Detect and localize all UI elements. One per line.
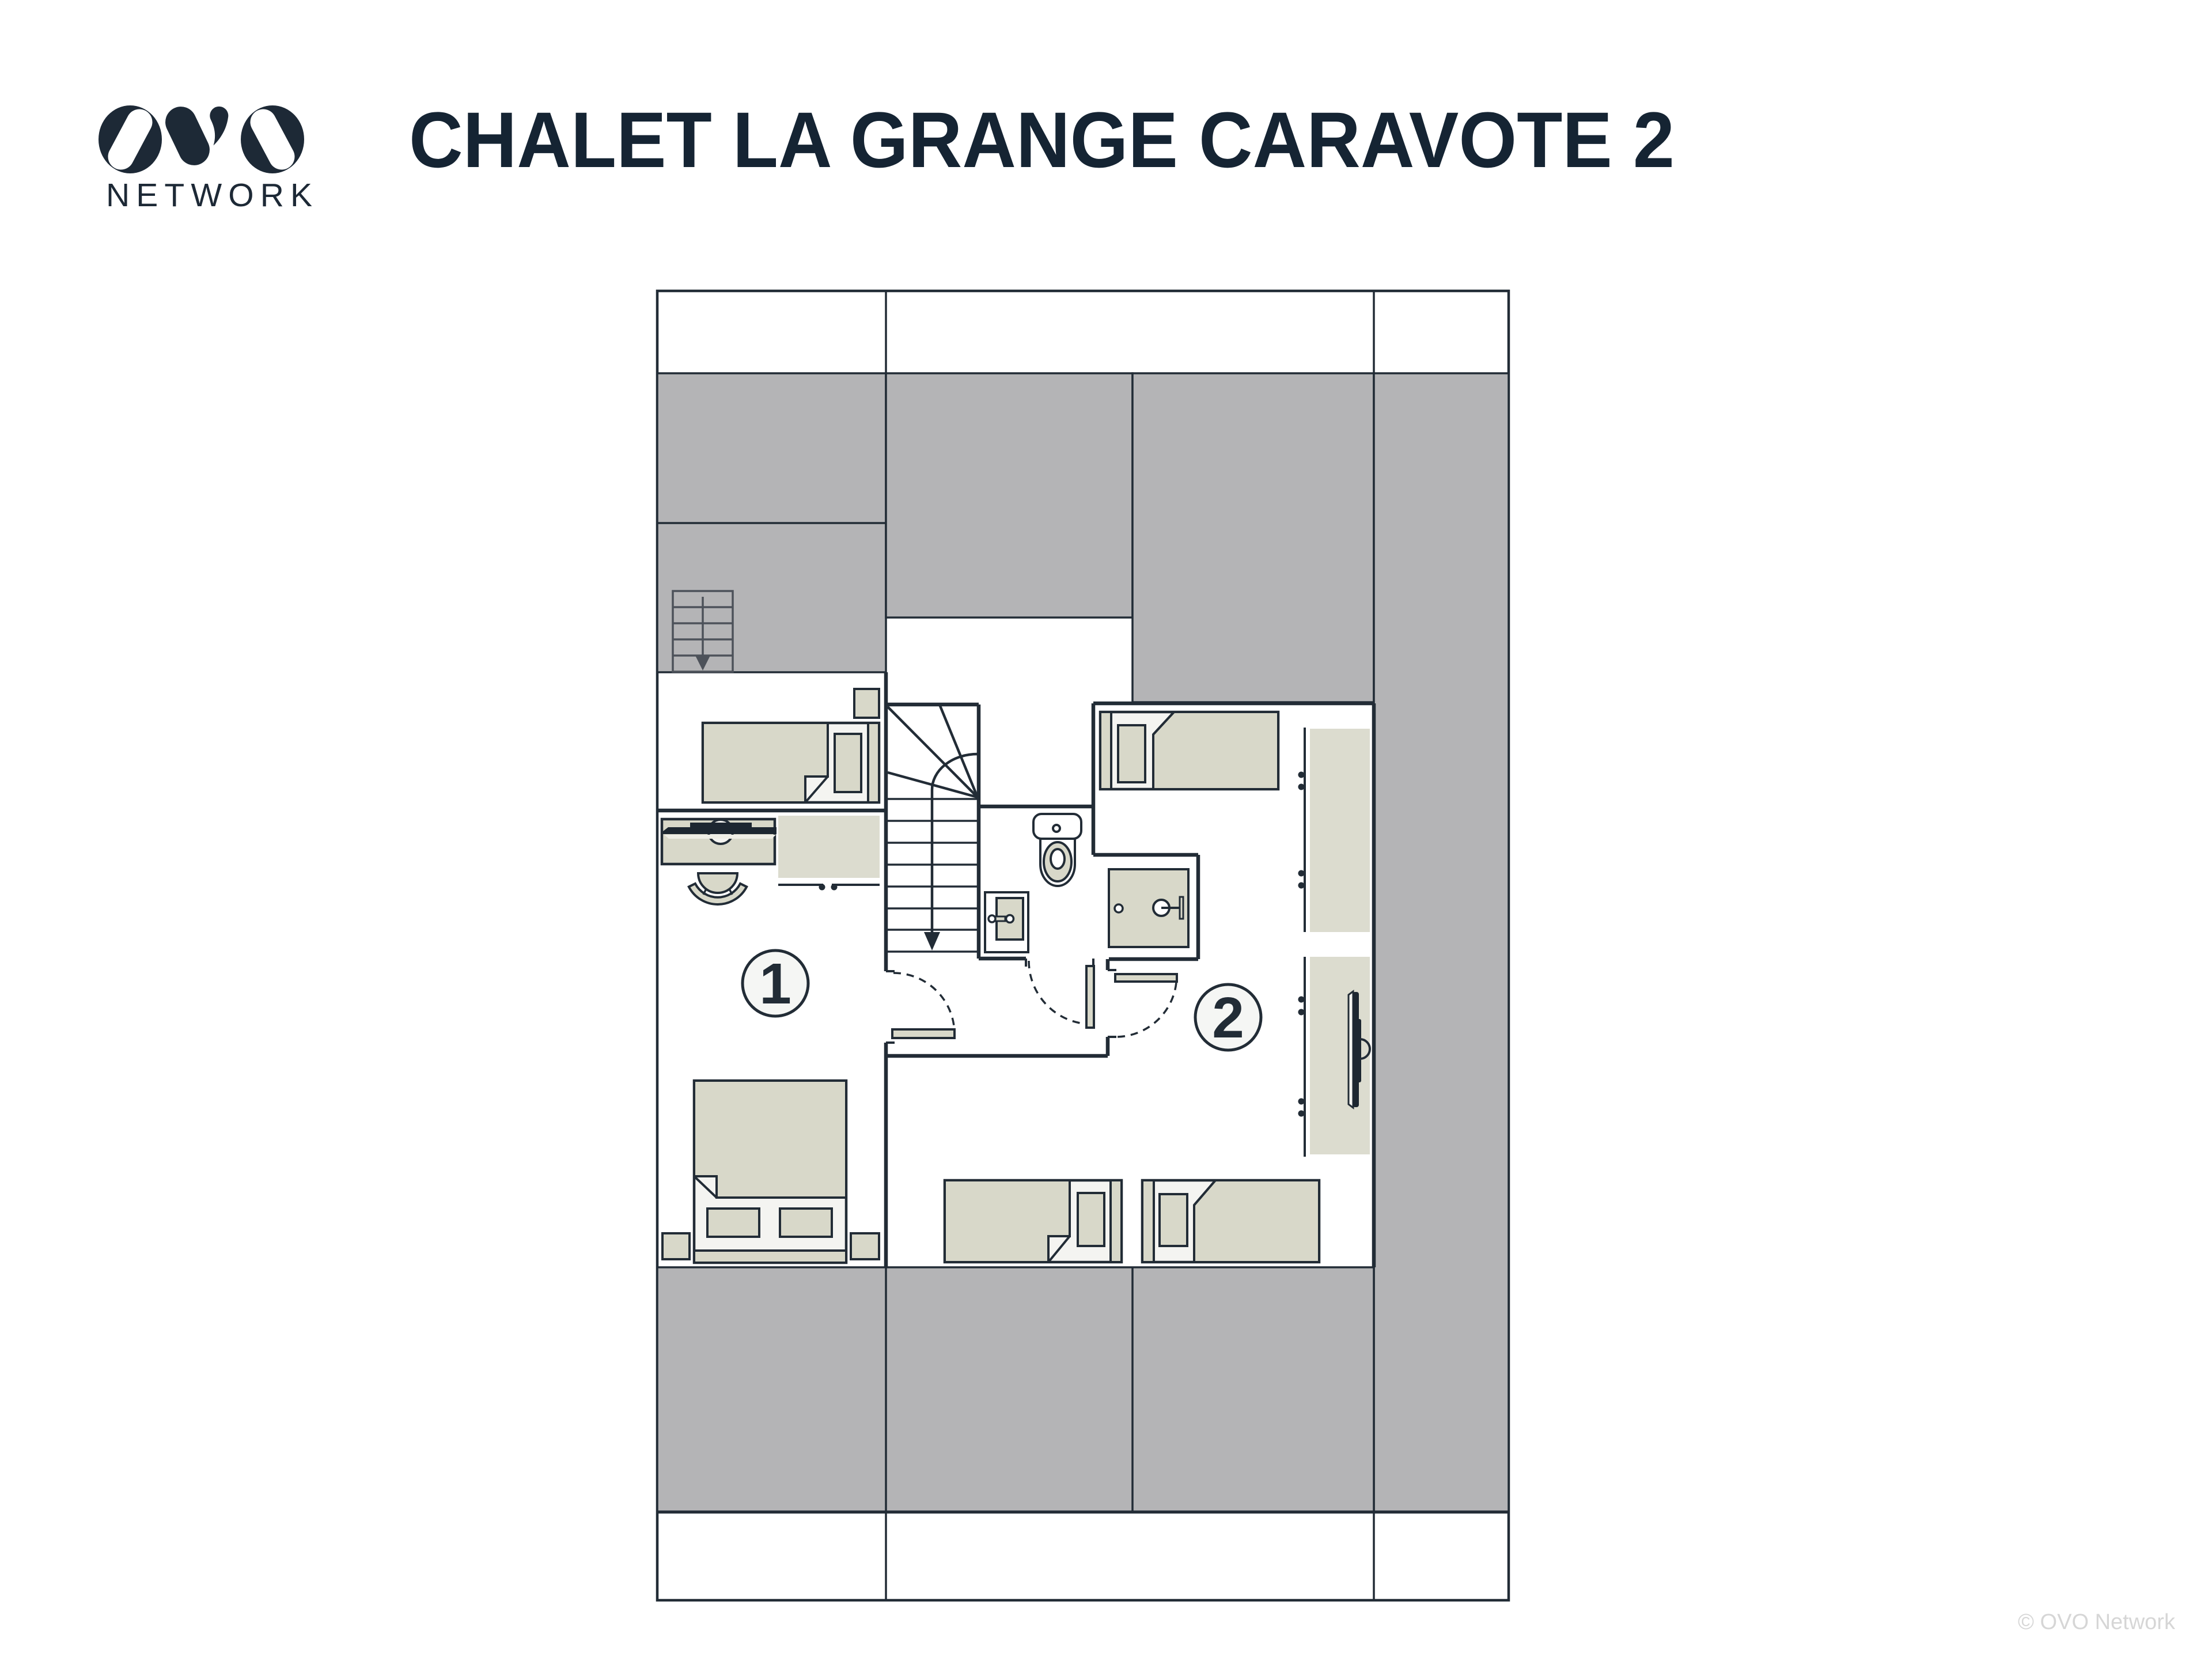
svg-text:2: 2 <box>1212 986 1244 1050</box>
svg-text:CHALET LA GRANGE CARAVOTE 2: CHALET LA GRANGE CARAVOTE 2 <box>409 96 1675 184</box>
svg-text:© OVO Network: © OVO Network <box>2018 1610 2176 1634</box>
svg-text:1: 1 <box>759 952 791 1016</box>
svg-text:NETWORK: NETWORK <box>106 177 319 214</box>
